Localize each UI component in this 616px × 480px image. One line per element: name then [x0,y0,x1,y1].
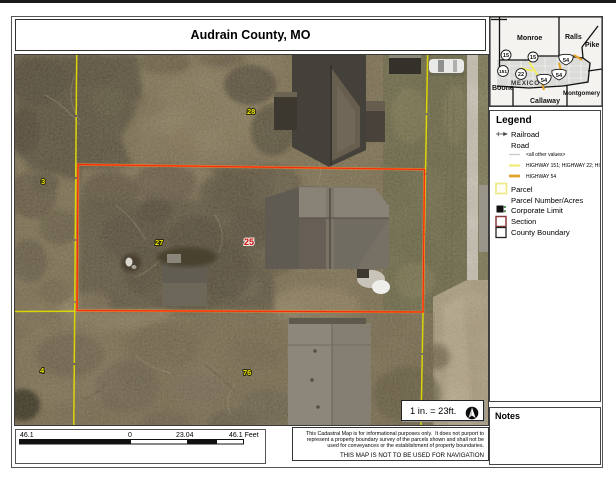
svg-text:54: 54 [563,58,570,64]
svg-text:Monroe: Monroe [517,35,542,42]
svg-text:27: 27 [155,238,163,247]
svg-text:Ralls: Ralls [565,34,582,41]
svg-text:Montgomery: Montgomery [563,90,601,97]
svg-text:Callaway: Callaway [530,98,560,105]
svg-text:25: 25 [244,237,254,247]
svg-text:15: 15 [530,55,536,61]
svg-text:28: 28 [247,107,255,116]
svg-text:15: 15 [503,53,509,59]
svg-text:76: 76 [243,368,251,377]
svg-text:22: 22 [518,72,524,78]
svg-text:3: 3 [41,177,45,186]
svg-text:54: 54 [556,73,563,79]
svg-text:Pike: Pike [585,42,600,49]
svg-text:MEXICO: MEXICO [511,80,540,87]
svg-text:151: 151 [499,69,507,75]
svg-text:54: 54 [541,78,548,84]
